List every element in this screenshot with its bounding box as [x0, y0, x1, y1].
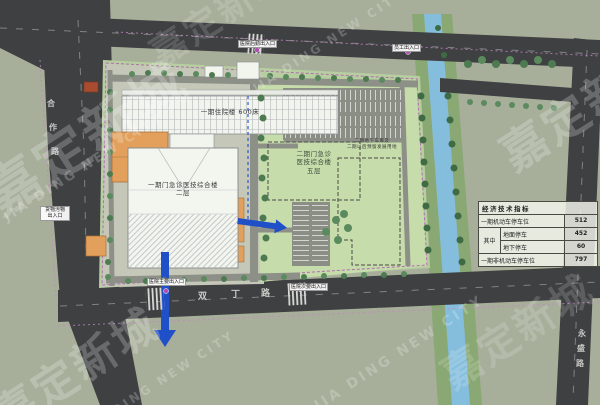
tree — [467, 99, 473, 105]
tree — [107, 89, 113, 95]
tree — [495, 101, 501, 107]
tree — [129, 71, 135, 77]
tree — [321, 273, 327, 279]
tree — [401, 271, 407, 277]
tree — [107, 149, 113, 155]
tree — [509, 102, 515, 108]
tree — [201, 276, 207, 282]
tree — [241, 275, 247, 281]
table-row3-label: 地下停车 — [501, 241, 565, 254]
road-name-bottom-char3: 路 — [261, 286, 270, 299]
tree — [259, 175, 266, 182]
tree — [457, 237, 464, 244]
tree — [107, 237, 113, 243]
tree — [418, 93, 425, 100]
hospital-site-plan: 一期住院楼 600床 一期门急诊医技综合楼 二层 二期门急诊 医技综合楼 五层 … — [0, 0, 600, 405]
tree — [481, 100, 487, 106]
tree — [395, 77, 401, 83]
tree — [125, 278, 131, 284]
tree — [422, 181, 429, 188]
tree — [107, 127, 113, 133]
tree — [315, 75, 321, 81]
tree — [453, 189, 460, 196]
tree — [421, 159, 428, 166]
tree — [281, 274, 287, 280]
north-entrance-label: 医院后勤出入口 — [238, 40, 277, 48]
phase1-inpatient-building — [122, 90, 338, 134]
main-entrance-label: 医院主要出入口 — [147, 278, 186, 286]
road-name-left-char3: 路 — [51, 146, 59, 157]
tree — [261, 275, 267, 281]
road-name-bottom-char2: 丁 — [231, 287, 240, 300]
tree — [331, 75, 337, 81]
tree — [105, 259, 111, 265]
tree — [161, 70, 167, 76]
tree — [107, 171, 113, 177]
utility-building-orange — [86, 236, 106, 256]
tree — [447, 117, 454, 124]
tree — [260, 215, 267, 222]
tree — [260, 115, 267, 122]
tree — [267, 73, 273, 79]
tree — [347, 76, 353, 82]
tree — [340, 210, 348, 218]
tree — [193, 71, 199, 77]
tree — [107, 193, 113, 199]
tree — [464, 60, 472, 68]
tree — [435, 25, 441, 31]
tree — [455, 213, 462, 220]
road-name-right-char1: 永 — [578, 328, 586, 339]
gatehouse-red — [84, 82, 98, 92]
staff-entrance-label: 员工出入口 — [392, 44, 421, 52]
tree — [261, 255, 268, 262]
road-name-left-char1: 合 — [47, 98, 55, 109]
table-row4-value: 797 — [565, 254, 597, 266]
table-row3-value: 60 — [565, 241, 597, 254]
tree — [334, 236, 342, 244]
tree — [209, 72, 215, 78]
tree — [445, 93, 452, 100]
road-name-left-char2: 作 — [49, 122, 57, 133]
tree — [332, 216, 340, 224]
technical-indicator-table: 经济技术指标 一期机动车停车位 512 其中 地面停车 452 地下停车 60 … — [478, 201, 598, 267]
table-title: 经济技术指标 — [479, 202, 597, 215]
tree — [262, 195, 269, 202]
tree — [221, 276, 227, 282]
table-row1-value: 512 — [565, 215, 597, 228]
table-row2-value: 452 — [565, 228, 597, 241]
tree — [322, 228, 330, 236]
tree — [534, 56, 542, 64]
road-name-right-char2: 盛 — [577, 343, 585, 354]
tree — [420, 137, 427, 144]
table-row4-label: 一期非机动车停车位 — [479, 254, 565, 266]
tree — [225, 72, 231, 78]
table-group-label: 其中 — [479, 228, 501, 254]
road-name-bottom-char1: 双 — [198, 289, 207, 302]
tree — [551, 105, 557, 111]
road-name-right-char3: 路 — [576, 358, 584, 369]
tree — [177, 71, 183, 77]
tree — [261, 155, 268, 162]
tree — [449, 141, 456, 148]
tree — [492, 60, 500, 68]
tree — [537, 104, 543, 110]
tree — [363, 76, 369, 82]
table-row2-label: 地面停车 — [501, 228, 565, 241]
tree — [105, 274, 111, 280]
tree — [478, 56, 486, 64]
tree — [451, 165, 458, 172]
tree — [523, 103, 529, 109]
tree — [283, 74, 289, 80]
tree — [145, 70, 151, 76]
tree — [301, 274, 307, 280]
logistics-entrance-label: 货物污物 出入口 — [40, 206, 70, 221]
tree — [107, 215, 113, 221]
tree — [548, 60, 556, 68]
tree — [520, 60, 528, 68]
tree — [299, 74, 305, 80]
table-row1-label: 一期机动车停车位 — [479, 215, 565, 228]
secondary-entrance-label: 医院次要出入口 — [289, 283, 328, 291]
tree — [107, 107, 113, 113]
tree — [381, 272, 387, 278]
tree — [258, 135, 265, 142]
tree — [441, 52, 447, 58]
tree — [459, 259, 466, 266]
tree — [341, 273, 347, 279]
tree — [419, 115, 426, 122]
tree — [423, 203, 430, 210]
phase1-outpatient-building — [128, 148, 238, 268]
tree — [424, 225, 431, 232]
logistics-label-line2: 出入口 — [42, 213, 68, 219]
tree — [258, 95, 265, 102]
tree — [379, 77, 385, 83]
tree — [361, 272, 367, 278]
tree — [425, 247, 432, 254]
tree — [506, 56, 514, 64]
tree — [344, 224, 352, 232]
tree — [263, 235, 270, 242]
